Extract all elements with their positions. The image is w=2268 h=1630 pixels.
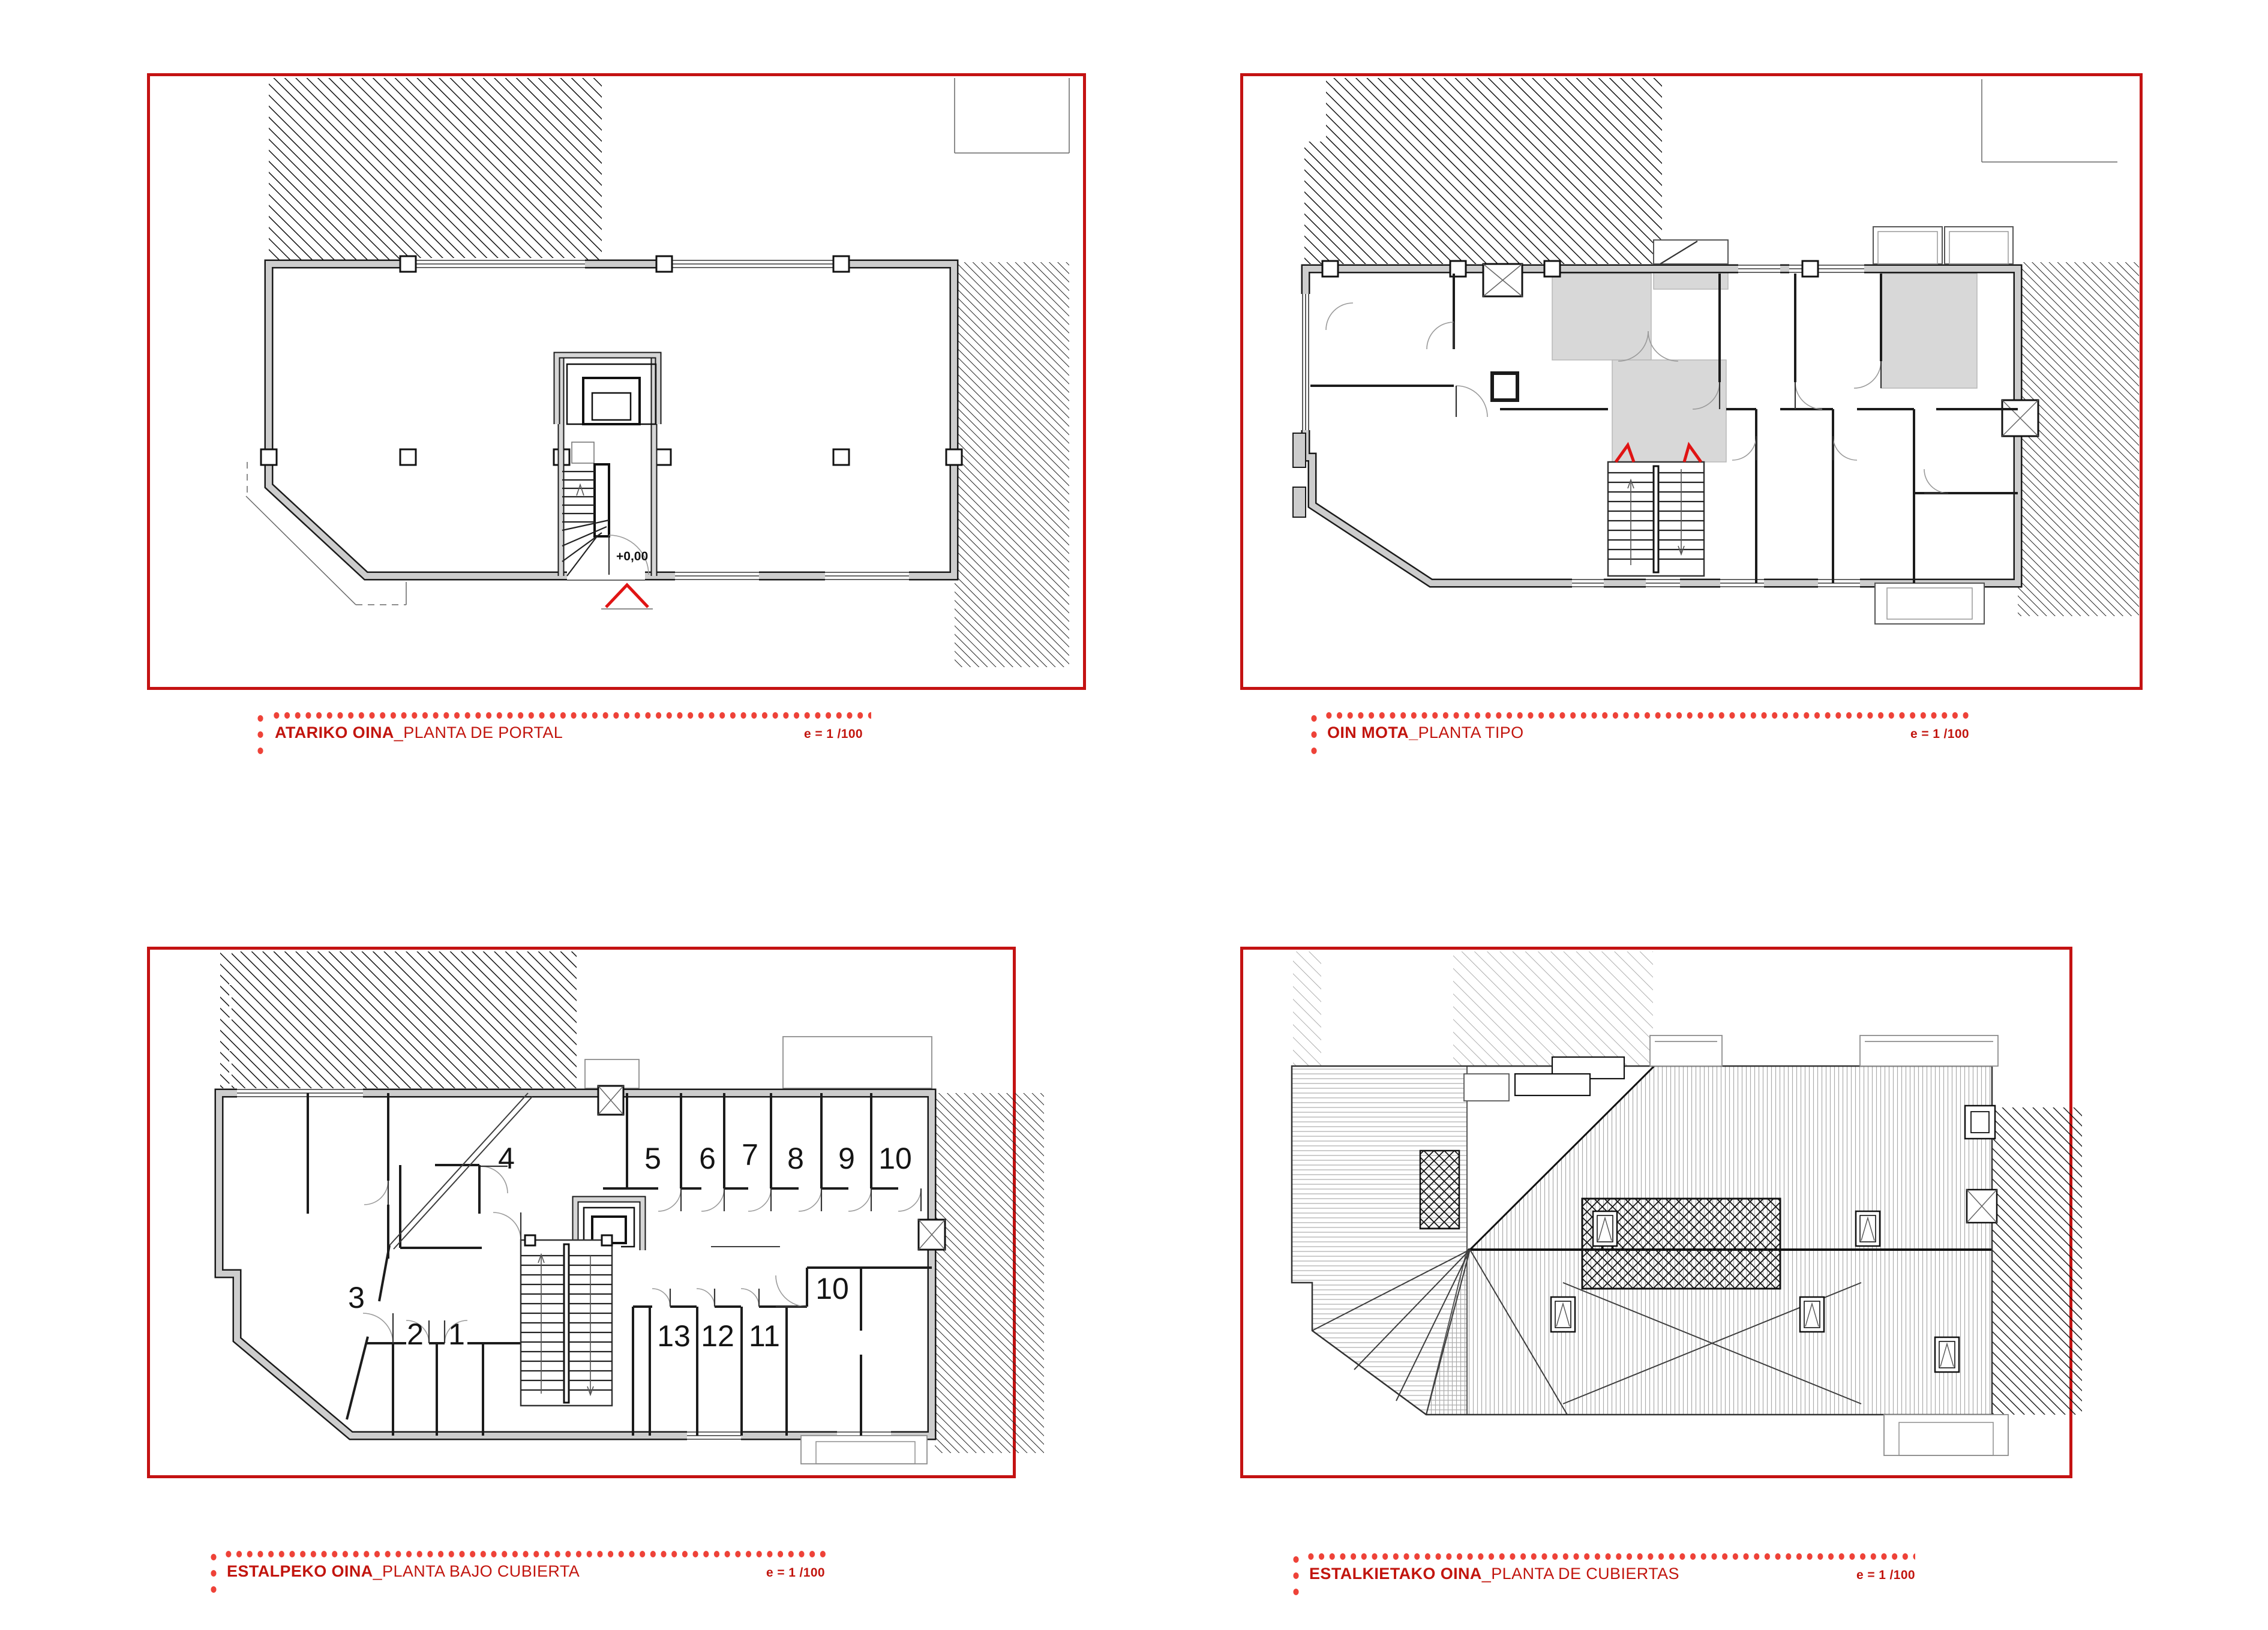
stair-rail [595, 464, 609, 536]
room-number: 10 [815, 1272, 849, 1305]
room-number: 1 [448, 1317, 465, 1351]
plan-subtitle: PLANTA TIPO [1418, 724, 1524, 742]
stair-core [1608, 445, 1704, 576]
room-number: 8 [787, 1142, 804, 1175]
atariko-floor-plan-drawing: +0,00 [147, 73, 1086, 690]
stair-rail [564, 1244, 569, 1403]
stair-elevator-core [521, 1199, 643, 1406]
plan-subtitle: _PLANTA BAJO CUBIERTA [373, 1562, 580, 1581]
plan-label-estalkietako: ESTALKIETAKO OINA_PLANTA DE CUBIERTAS e … [1309, 1565, 1915, 1583]
plan-scale: e = 1 /100 [804, 727, 863, 742]
room-number: 9 [838, 1142, 855, 1175]
drawing-sheet: { "sheet": { "type": "architectural-floo… [0, 0, 2268, 1630]
roof-window [1935, 1337, 1959, 1372]
stair-direction-arrow [577, 485, 584, 496]
room-number: 13 [657, 1319, 691, 1353]
label-dots-row [1324, 710, 1973, 721]
room-numbers: 4 5 6 7 8 9 10 10 13 12 11 1 2 3 [348, 1138, 912, 1353]
room-number: 4 [498, 1142, 515, 1175]
entrance-marker [601, 585, 653, 609]
roof-window [1856, 1211, 1880, 1246]
entrance-marker-triangle [606, 585, 648, 607]
plan-scale: e = 1 /100 [1856, 1568, 1915, 1583]
panel-estalkietako-oina [1240, 947, 2092, 1478]
plan-label-oin-mota: OIN MOTA_ PLANTA TIPO e = 1 /100 [1327, 724, 1969, 742]
plan-scale: e = 1 /100 [1910, 727, 1969, 742]
entry-bay [1654, 240, 1728, 264]
room-number: 11 [749, 1319, 780, 1353]
label-dots-row [223, 1549, 828, 1559]
estalpeko-floor-plan-drawing: 4 5 6 7 8 9 10 10 13 12 11 1 2 3 [147, 947, 1047, 1478]
room-number: 5 [644, 1142, 661, 1175]
panel-estalpeko-oina: 4 5 6 7 8 9 10 10 13 12 11 1 2 3 [147, 947, 1047, 1478]
plan-scale: e = 1 /100 [766, 1566, 825, 1580]
plan-title: ATARIKO OINA [275, 724, 394, 742]
stair-rail [1654, 466, 1658, 572]
room-number: 12 [701, 1319, 734, 1353]
label-dots-vertical [209, 1549, 218, 1597]
room-number: 2 [407, 1317, 424, 1351]
label-dots-vertical [1309, 710, 1319, 758]
plan-label-atariko: ATARIKO OINA_PLANTA DE PORTAL e = 1 /100 [275, 724, 863, 742]
left-bay-window [1293, 433, 1306, 467]
room-number: 10 [878, 1142, 912, 1175]
below-building-outline [801, 1436, 927, 1464]
oin-mota-floor-plan-drawing [1240, 73, 2143, 690]
bottom-balcony [1875, 583, 1984, 624]
room-number: 3 [348, 1281, 365, 1314]
roof-window [1800, 1297, 1824, 1332]
label-dots-row [271, 710, 871, 721]
plan-title: ESTALPEKO OINA [227, 1562, 373, 1581]
panel-oin-mota [1240, 73, 2143, 690]
stair-elevator-core [557, 355, 658, 576]
roof-window [1593, 1211, 1617, 1246]
plan-title: ESTALKIETAKO OINA [1309, 1565, 1482, 1583]
label-dots-vertical [1291, 1551, 1301, 1599]
level-marker: +0,00 [616, 550, 648, 563]
plan-subtitle: _PLANTA DE CUBIERTAS [1482, 1565, 1679, 1583]
level-text: +0,00 [616, 550, 648, 563]
panel-atariko-oina: +0,00 [147, 73, 1086, 690]
room-number: 7 [742, 1138, 758, 1172]
estalkietako-roof-plan-drawing [1240, 947, 2092, 1478]
label-dots-row [1306, 1551, 1915, 1562]
room-number: 6 [699, 1142, 716, 1175]
door-swings [363, 1166, 921, 1343]
plan-subtitle: _PLANTA DE PORTAL [394, 724, 563, 742]
plan-title: OIN MOTA_ [1327, 724, 1418, 742]
roof-window [1551, 1297, 1575, 1332]
structural-columns [261, 256, 962, 465]
left-bay-window [1293, 487, 1306, 517]
below-building-outline [1884, 1415, 2008, 1455]
plan-label-estalpeko: ESTALPEKO OINA_PLANTA BAJO CUBIERTA e = … [227, 1562, 825, 1581]
label-dots-vertical [256, 710, 265, 758]
